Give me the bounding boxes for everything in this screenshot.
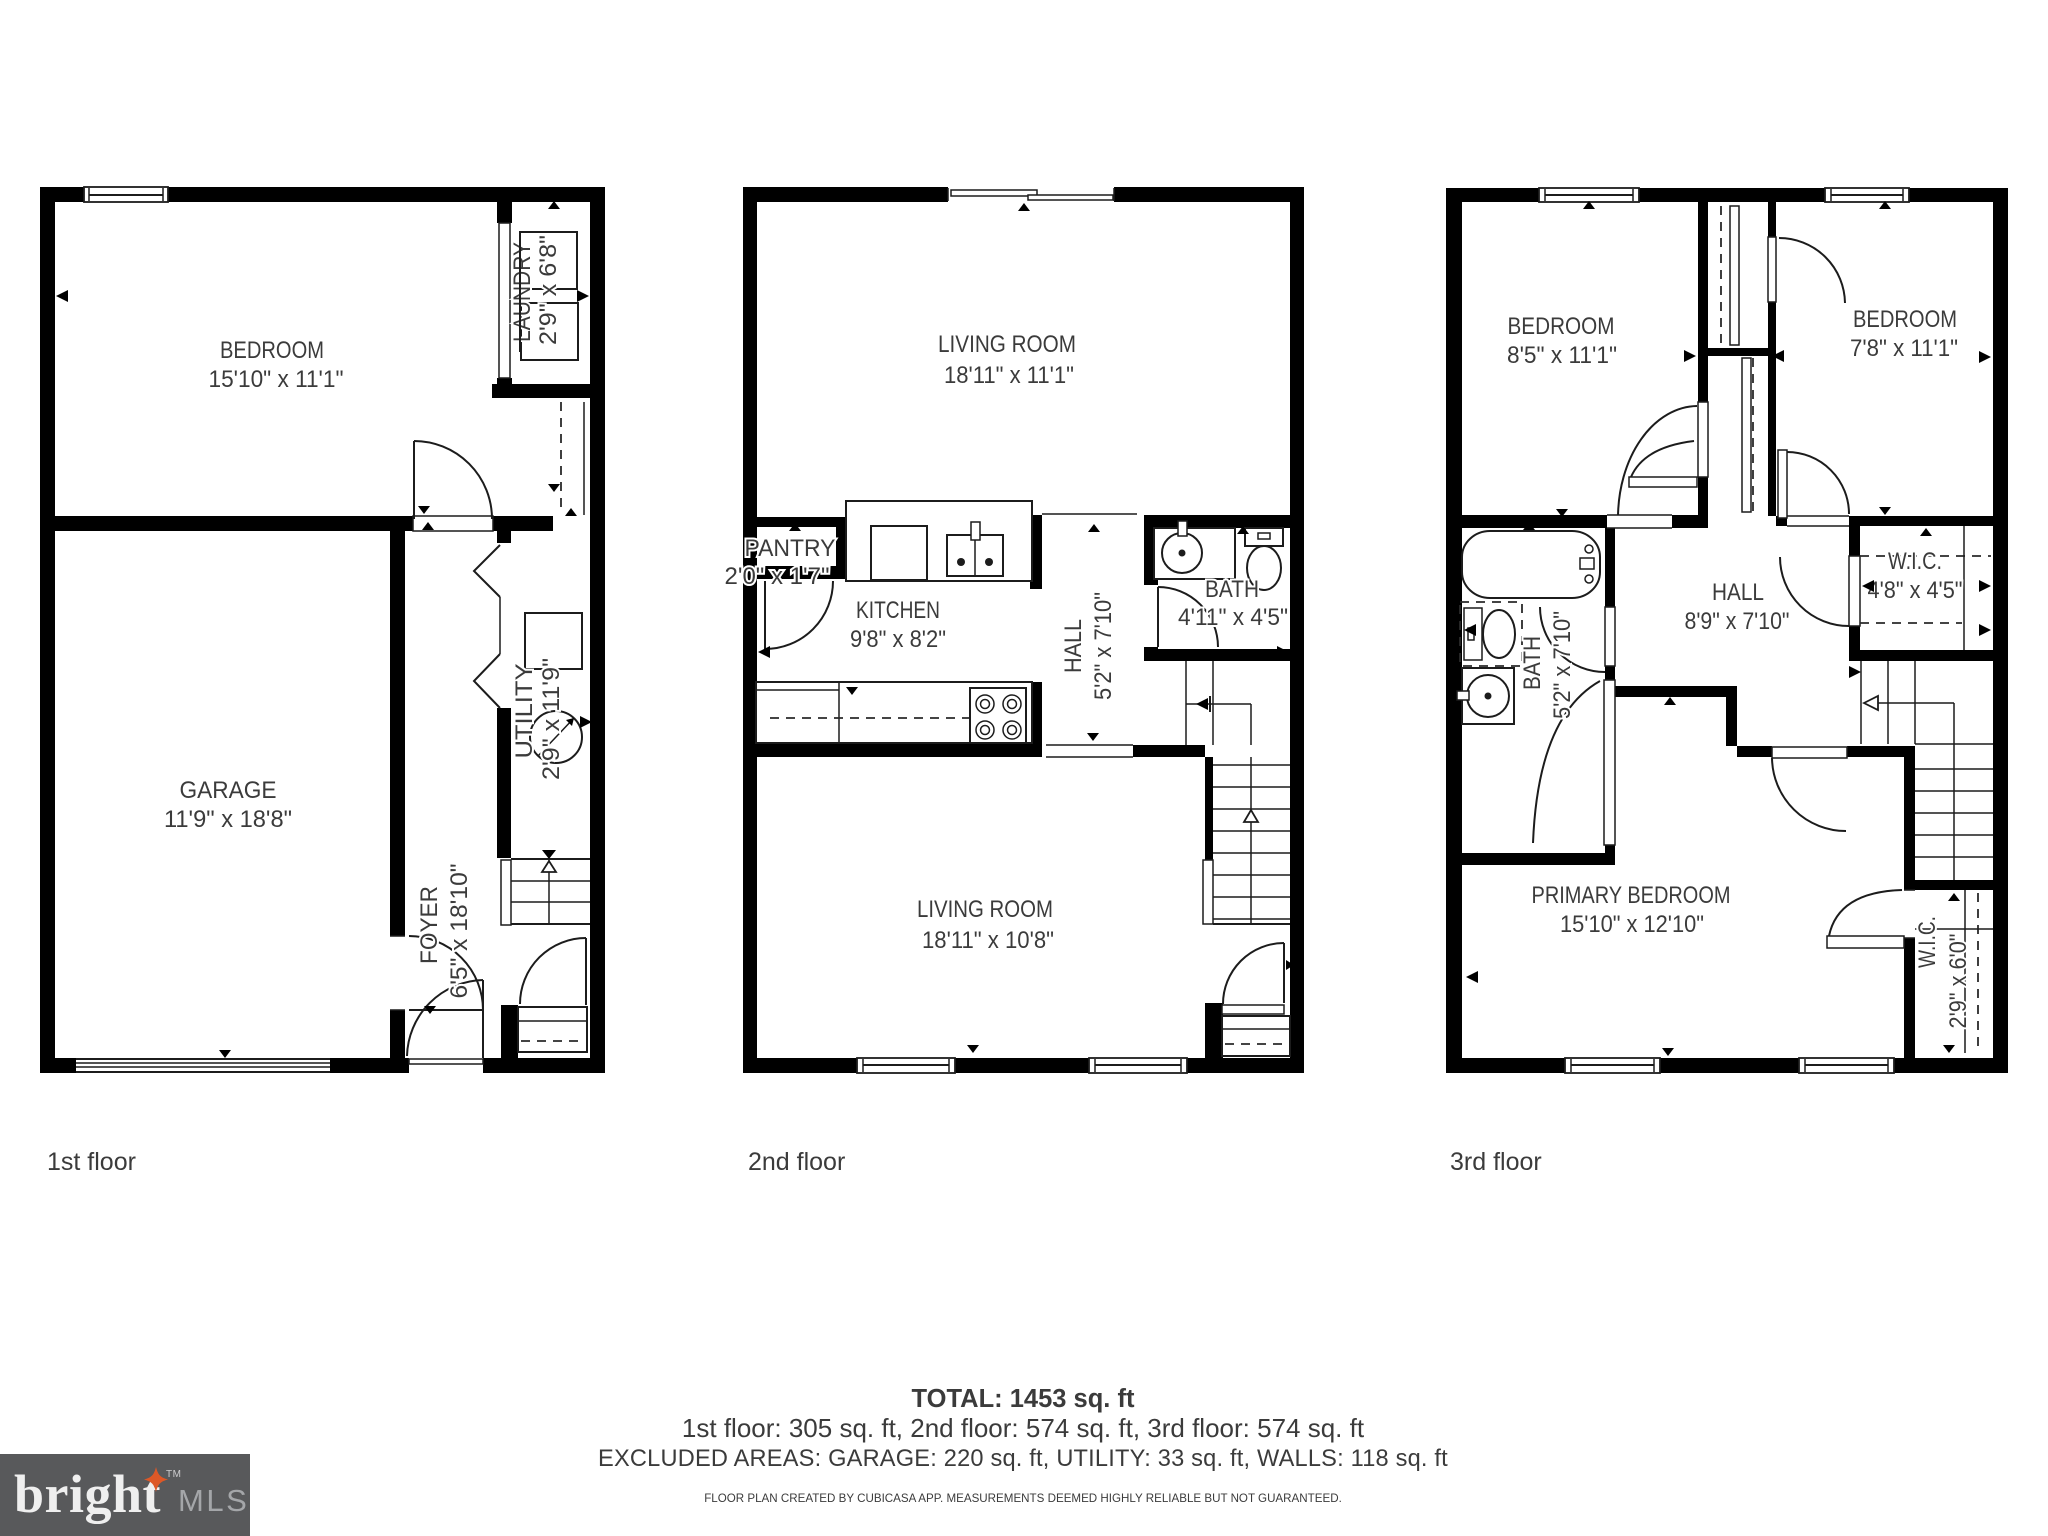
svg-text:15'10" x 11'1": 15'10" x 11'1"	[209, 366, 344, 393]
svg-text:3rd floor: 3rd floor	[1450, 1148, 1542, 1176]
svg-text:5'2" x 7'10": 5'2" x 7'10"	[1090, 592, 1117, 700]
svg-text:PANTRY: PANTRY	[745, 535, 836, 562]
svg-text:UTILITY: UTILITY	[511, 664, 538, 759]
svg-text:W.I.C.: W.I.C.	[1914, 916, 1941, 968]
svg-text:2'0" x 1'7": 2'0" x 1'7"	[725, 563, 830, 590]
svg-text:2'9" x 11'9": 2'9" x 11'9"	[538, 658, 565, 780]
svg-text:PRIMARY BEDROOM: PRIMARY BEDROOM	[1532, 882, 1731, 909]
svg-text:BATH: BATH	[1205, 576, 1259, 603]
svg-text:6'5" x 18'10": 6'5" x 18'10"	[446, 864, 473, 999]
svg-text:FLOOR PLAN CREATED BY CUBICASA: FLOOR PLAN CREATED BY CUBICASA APP. MEAS…	[704, 1492, 1342, 1505]
svg-text:9'8" x 8'2": 9'8" x 8'2"	[850, 626, 946, 653]
svg-text:2'9" x 6'8": 2'9" x 6'8"	[535, 235, 562, 345]
svg-text:8'5" x 11'1": 8'5" x 11'1"	[1507, 342, 1617, 369]
svg-text:1st floor: 1st floor	[47, 1148, 136, 1176]
svg-text:2nd floor: 2nd floor	[748, 1148, 845, 1176]
svg-text:FOYER: FOYER	[416, 886, 443, 964]
svg-text:2'9" x 6'0": 2'9" x 6'0"	[1945, 934, 1972, 1029]
svg-text:4'8" x 4'5": 4'8" x 4'5"	[1868, 577, 1963, 604]
svg-text:KITCHEN: KITCHEN	[856, 597, 940, 624]
svg-text:LAUNDRY: LAUNDRY	[509, 242, 536, 342]
svg-text:BEDROOM: BEDROOM	[220, 337, 324, 364]
svg-text:BEDROOM: BEDROOM	[1508, 313, 1615, 340]
svg-text:BATH: BATH	[1519, 636, 1546, 690]
svg-text:15'10" x 12'10": 15'10" x 12'10"	[1560, 911, 1704, 938]
svg-text:GARAGE: GARAGE	[180, 777, 277, 804]
svg-text:TOTAL: 1453 sq. ft: TOTAL: 1453 sq. ft	[912, 1385, 1135, 1413]
svg-text:MLS: MLS	[178, 1483, 249, 1518]
svg-text:LIVING ROOM: LIVING ROOM	[938, 331, 1076, 358]
svg-text:18'11" x 10'8": 18'11" x 10'8"	[922, 927, 1054, 954]
svg-text:5'2" x 7'10": 5'2" x 7'10"	[1549, 611, 1576, 719]
svg-text:LIVING ROOM: LIVING ROOM	[917, 896, 1053, 923]
svg-text:7'8" x 11'1": 7'8" x 11'1"	[1850, 335, 1958, 362]
svg-text:8'9" x 7'10": 8'9" x 7'10"	[1685, 608, 1790, 635]
svg-text:EXCLUDED AREAS: GARAGE: 220 sq: EXCLUDED AREAS: GARAGE: 220 sq. ft, UTIL…	[598, 1446, 1448, 1472]
svg-text:TM: TM	[166, 1469, 181, 1480]
svg-text:HALL: HALL	[1060, 619, 1087, 673]
svg-text:11'9" x 18'8": 11'9" x 18'8"	[164, 806, 292, 833]
svg-text:bright: bright	[14, 1464, 161, 1524]
svg-text:4'11" x 4'5": 4'11" x 4'5"	[1178, 604, 1288, 631]
svg-text:BEDROOM: BEDROOM	[1853, 306, 1957, 333]
svg-text:HALL: HALL	[1712, 579, 1764, 606]
svg-text:W.I.C.: W.I.C.	[1888, 548, 1942, 575]
svg-text:18'11" x 11'1": 18'11" x 11'1"	[944, 362, 1074, 389]
svg-text:1st floor: 305 sq. ft, 2nd flo: 1st floor: 305 sq. ft, 2nd floor: 574 sq…	[682, 1413, 1365, 1443]
